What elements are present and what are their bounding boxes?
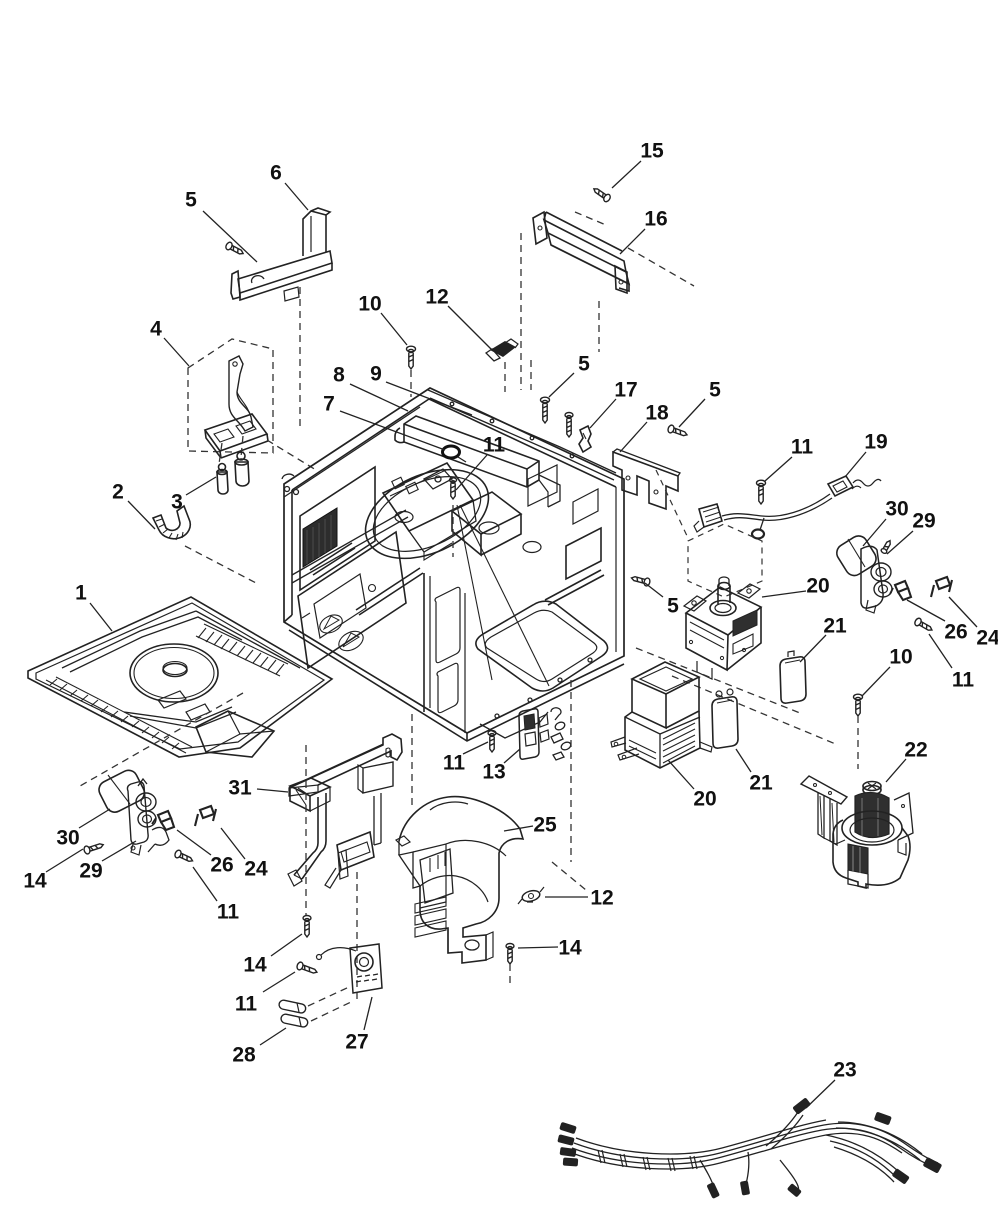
svg-text:6: 6 <box>270 162 282 185</box>
svg-text:29: 29 <box>79 860 102 883</box>
svg-text:15: 15 <box>640 140 664 163</box>
svg-text:25: 25 <box>533 814 557 837</box>
svg-text:26: 26 <box>210 854 233 877</box>
svg-text:11: 11 <box>443 752 466 775</box>
svg-text:14: 14 <box>243 954 267 977</box>
svg-text:7: 7 <box>323 393 335 416</box>
svg-text:9: 9 <box>370 363 382 386</box>
svg-text:11: 11 <box>217 901 240 924</box>
svg-text:22: 22 <box>904 739 927 762</box>
svg-text:13: 13 <box>482 761 505 784</box>
svg-text:12: 12 <box>590 887 613 910</box>
svg-text:26: 26 <box>944 621 967 644</box>
svg-text:31: 31 <box>228 777 252 800</box>
svg-text:5: 5 <box>185 189 197 212</box>
svg-text:4: 4 <box>150 318 162 341</box>
svg-text:19: 19 <box>864 431 887 454</box>
svg-text:16: 16 <box>644 208 667 231</box>
svg-text:10: 10 <box>358 293 381 316</box>
svg-text:24: 24 <box>244 858 268 881</box>
svg-text:5: 5 <box>709 379 721 402</box>
svg-text:11: 11 <box>791 436 814 459</box>
svg-text:5: 5 <box>578 353 590 376</box>
svg-text:10: 10 <box>889 646 912 669</box>
svg-text:24: 24 <box>976 627 998 650</box>
svg-text:21: 21 <box>749 772 773 795</box>
svg-text:8: 8 <box>333 364 345 387</box>
svg-text:21: 21 <box>823 615 847 638</box>
svg-text:28: 28 <box>232 1044 256 1067</box>
svg-text:11: 11 <box>952 669 975 692</box>
svg-text:20: 20 <box>693 788 716 811</box>
svg-text:18: 18 <box>645 402 669 425</box>
svg-text:27: 27 <box>345 1031 368 1054</box>
svg-text:14: 14 <box>23 870 47 893</box>
svg-text:29: 29 <box>912 510 935 533</box>
svg-text:23: 23 <box>833 1059 856 1082</box>
svg-text:14: 14 <box>558 937 582 960</box>
svg-text:5: 5 <box>667 595 679 618</box>
svg-text:11: 11 <box>235 993 258 1016</box>
svg-text:30: 30 <box>56 827 79 850</box>
svg-text:17: 17 <box>614 379 637 402</box>
svg-text:30: 30 <box>885 498 908 521</box>
svg-text:12: 12 <box>425 286 448 309</box>
svg-text:11: 11 <box>483 434 506 457</box>
svg-text:20: 20 <box>806 575 829 598</box>
svg-text:1: 1 <box>75 582 87 605</box>
svg-text:2: 2 <box>112 481 124 504</box>
